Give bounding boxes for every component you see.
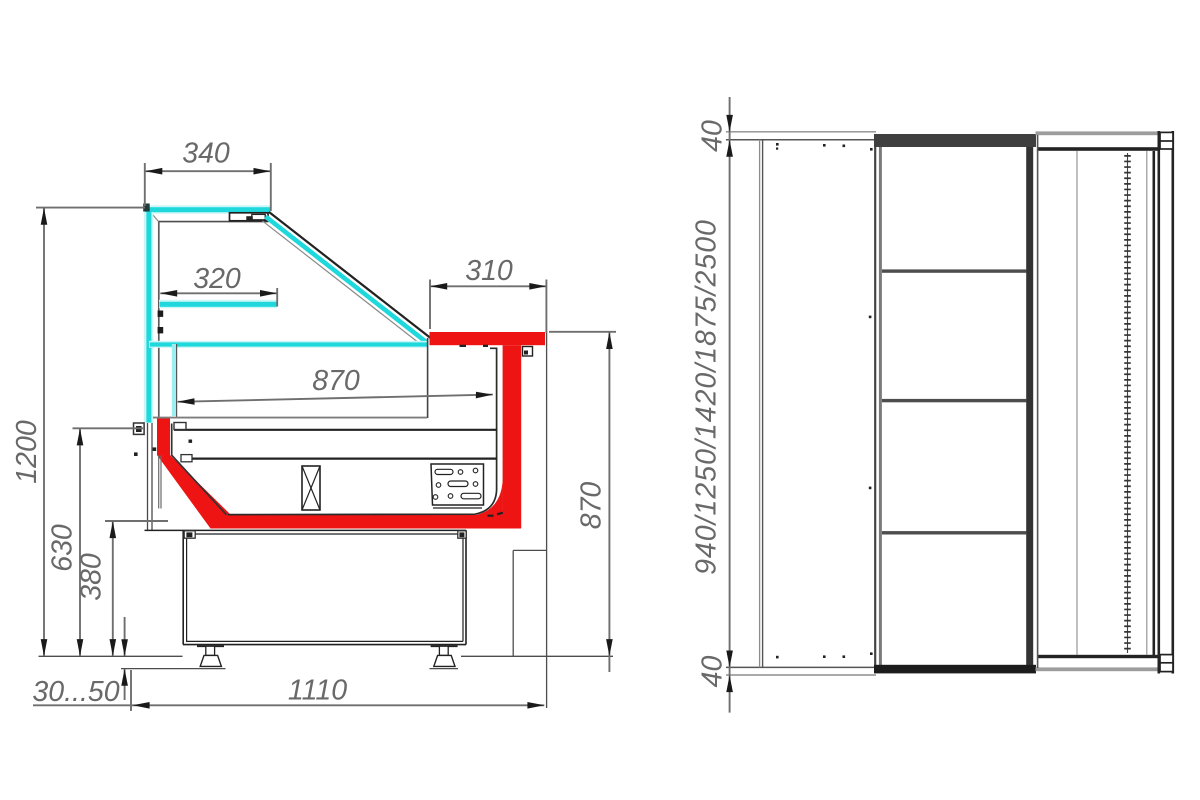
svg-text:320: 320 <box>193 263 241 295</box>
svg-text:310: 310 <box>465 255 513 287</box>
svg-text:940/1250/1420/1875/2500: 940/1250/1420/1875/2500 <box>691 219 723 575</box>
svg-text:340: 340 <box>182 138 230 170</box>
svg-text:870: 870 <box>576 482 608 530</box>
svg-text:1110: 1110 <box>288 675 347 707</box>
svg-text:40: 40 <box>697 656 729 688</box>
svg-text:380: 380 <box>76 553 108 601</box>
svg-text:870: 870 <box>312 365 360 397</box>
svg-text:1200: 1200 <box>11 420 43 484</box>
svg-text:630: 630 <box>47 524 79 572</box>
svg-text:40: 40 <box>697 120 729 152</box>
svg-text:30...50: 30...50 <box>32 676 119 708</box>
